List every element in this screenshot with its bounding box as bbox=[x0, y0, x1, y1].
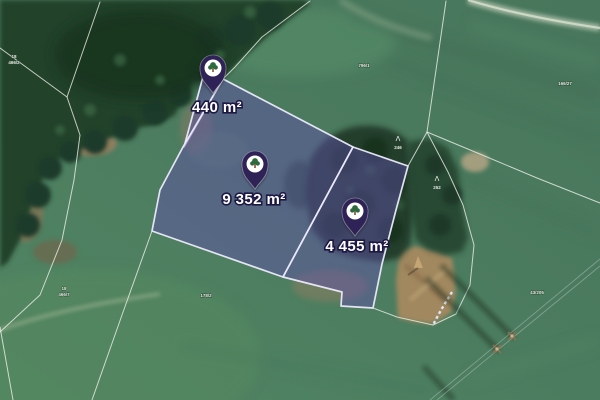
area-label-9352: 9 352 m² bbox=[222, 191, 285, 208]
tiny-parcel-number: 166/27 bbox=[558, 81, 572, 86]
tiny-parcel-number: 178/2 bbox=[200, 293, 212, 298]
tiny-parcel-number: 18 bbox=[61, 286, 67, 291]
tiny-parcel-number: 466/7 bbox=[58, 292, 70, 297]
tiny-parcel-number: 18 bbox=[11, 54, 17, 59]
triangulation-icon: Λ bbox=[396, 136, 401, 143]
area-label-440: 440 m² bbox=[192, 99, 242, 116]
tiny-parcel-number: 466/2 bbox=[8, 60, 20, 65]
dirt-patch-west3 bbox=[33, 240, 77, 264]
dirt-patch-east bbox=[461, 152, 489, 172]
tiny-parcel-number: 796/1 bbox=[358, 63, 370, 68]
satellite-map-canvas[interactable]: Λ Λ 18 466/2 18 466/7 178/2 43/205 166/2… bbox=[0, 0, 600, 400]
tiny-parcel-number: 43/205 bbox=[530, 290, 544, 295]
tiny-parcel-number: 246 bbox=[394, 145, 402, 150]
tiny-parcel-number: 252 bbox=[433, 185, 441, 190]
map-viewport[interactable]: Λ Λ 18 466/2 18 466/7 178/2 43/205 166/2… bbox=[0, 0, 600, 400]
area-label-4455: 4 455 m² bbox=[325, 238, 388, 255]
triangulation-icon: Λ bbox=[435, 176, 440, 183]
